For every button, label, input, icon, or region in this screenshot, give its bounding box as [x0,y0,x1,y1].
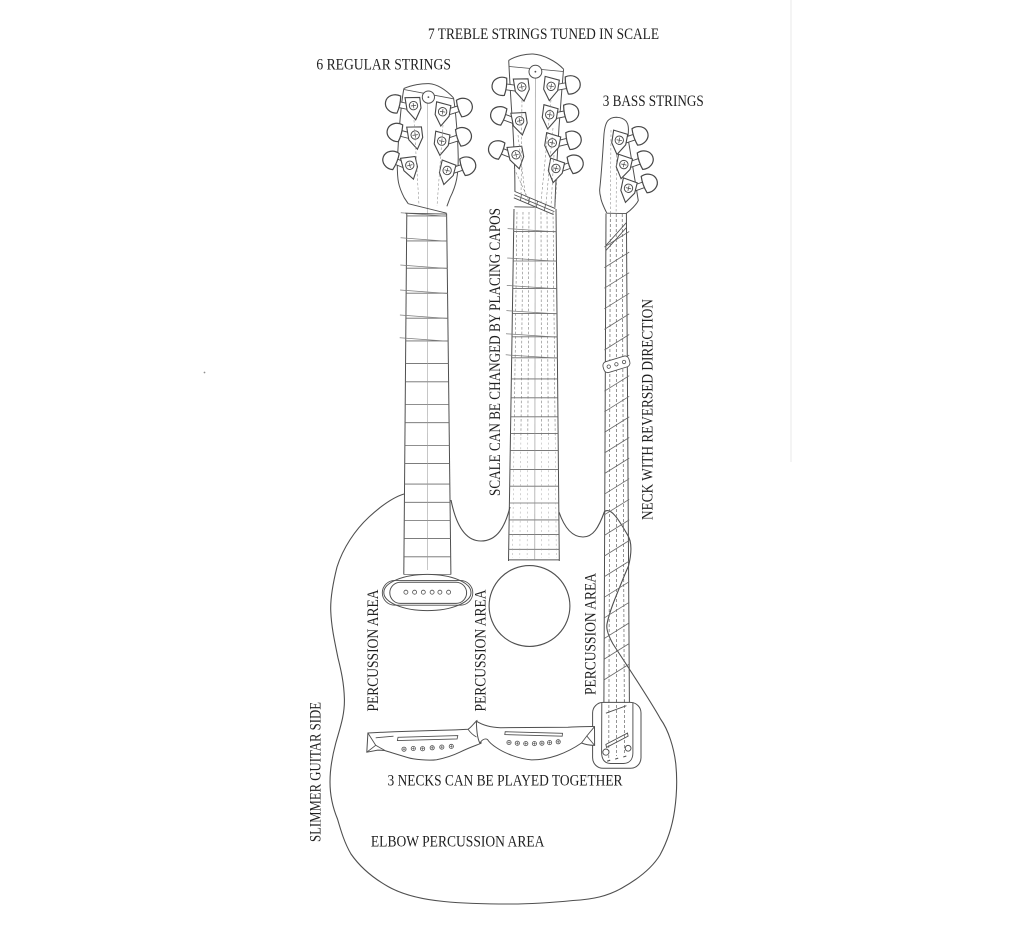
svg-text:SLIMMER GUITAR SIDE: SLIMMER GUITAR SIDE [308,702,325,842]
svg-text:PERCUSSION AREA: PERCUSSION AREA [583,573,600,695]
svg-text:SCALE CAN BE CHANGED BY PLACIN: SCALE CAN BE CHANGED BY PLACING CAPOS [487,208,504,496]
svg-text:PERCUSSION AREA: PERCUSSION AREA [473,589,490,711]
svg-text:ELBOW PERCUSSION AREA: ELBOW PERCUSSION AREA [371,834,545,851]
svg-text:NECK WITH REVERSED DIRECTION: NECK WITH REVERSED DIRECTION [640,299,657,520]
svg-text:PERCUSSION AREA: PERCUSSION AREA [365,589,382,711]
svg-text:3 NECKS CAN BE PLAYED TOGETHER: 3 NECKS CAN BE PLAYED TOGETHER [388,773,623,790]
svg-text:3 BASS STRINGS: 3 BASS STRINGS [603,93,704,110]
svg-text:7 TREBLE STRINGS TUNED IN SCAL: 7 TREBLE STRINGS TUNED IN SCALE [428,26,659,43]
svg-text:6 REGULAR STRINGS: 6 REGULAR STRINGS [316,57,451,74]
